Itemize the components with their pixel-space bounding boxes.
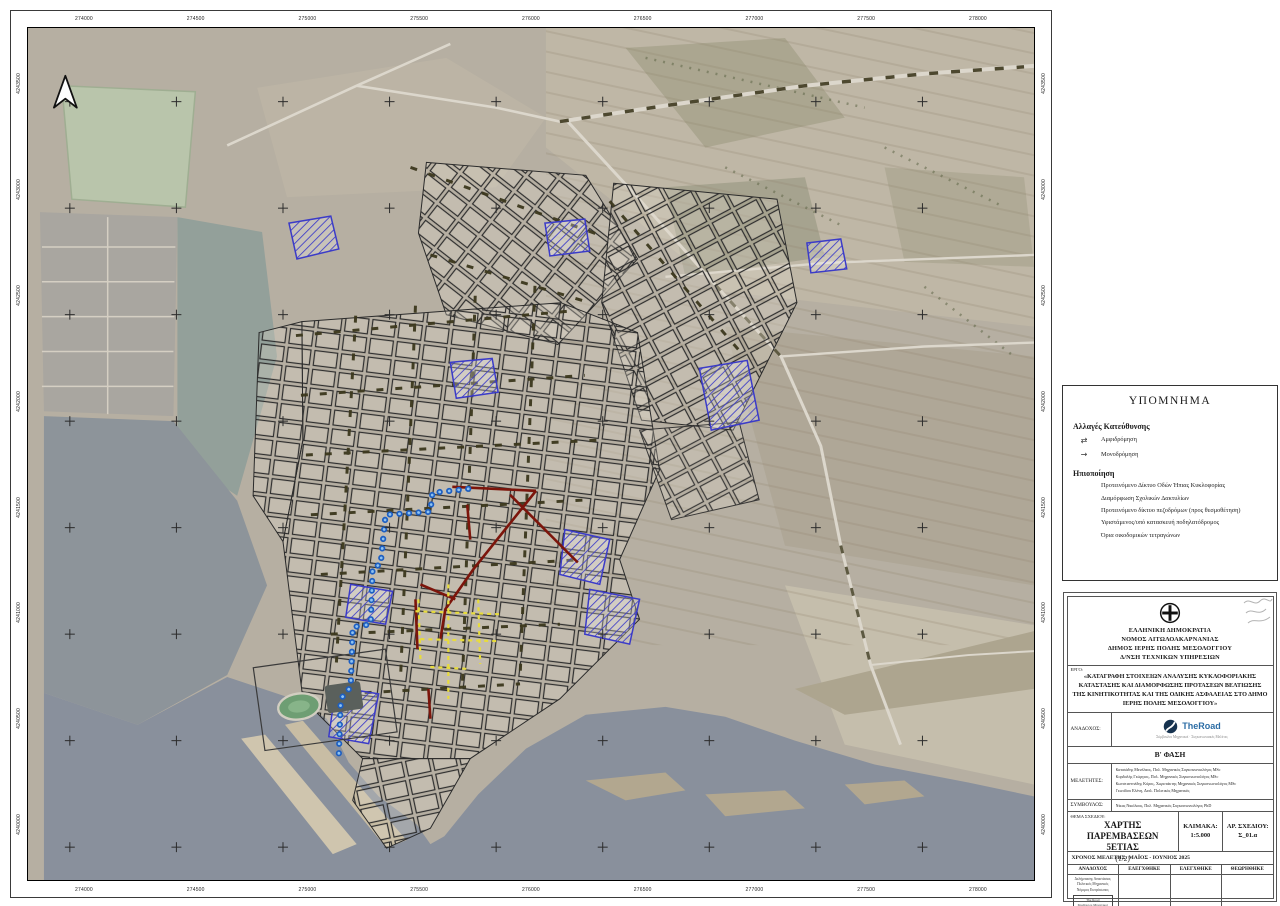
coord-label-y: 4241500 bbox=[1041, 497, 1047, 518]
drawing-number-cell: ΑΡ. ΣΧΕΔΙΟΥ: Σ_01.α bbox=[1223, 812, 1273, 851]
authority-line: Δ/ΝΣΗ ΤΕΧΝΙΚΩΝ ΥΠΗΡΕΣΙΩΝ bbox=[1070, 653, 1271, 662]
coordinate-labels-right: 4243500424300042425004242000424150042410… bbox=[1036, 27, 1051, 881]
coord-label-y: 4242500 bbox=[16, 285, 22, 306]
check-cell-2 bbox=[1171, 875, 1223, 906]
coord-label-y: 4240000 bbox=[16, 814, 22, 835]
theroad-logo-subtitle: Σύμβουλοι Μηχανικοί · Συγκοινωνιακές Μελ… bbox=[1156, 735, 1228, 740]
coord-label-y: 4243500 bbox=[1041, 73, 1047, 94]
legend-arrow-icon: ⇄ bbox=[1079, 437, 1089, 446]
coord-label-x: 275000 bbox=[299, 16, 317, 22]
coord-label-y: 4243000 bbox=[1041, 179, 1047, 200]
drawing-no-label: ΑΡ. ΣΧΕΔΙΟΥ: bbox=[1225, 822, 1271, 832]
coord-label-x: 274000 bbox=[75, 16, 93, 22]
designer-line: Κατσιάδης Μενέλαος, Πολ. Μηχανικός Συγκο… bbox=[1116, 766, 1269, 773]
coord-label-y: 4241000 bbox=[16, 602, 22, 623]
coord-label-y: 4242000 bbox=[16, 391, 22, 412]
legend-title: ΥΠΟΜΝΗΜΑ bbox=[1073, 395, 1267, 407]
check-cell-1 bbox=[1119, 875, 1171, 906]
designer-signatures-icon bbox=[1240, 595, 1274, 629]
coord-label-x: 276000 bbox=[522, 887, 540, 893]
legend-item: Διαμόρφωση Σχολικών Δακτυλίων bbox=[1079, 496, 1267, 503]
coord-label-x: 275500 bbox=[410, 16, 428, 22]
legend-item: Όρια οικοδομικών τετραγώνων bbox=[1079, 533, 1267, 540]
coord-label-y: 4243000 bbox=[16, 179, 22, 200]
coord-label-y: 4240500 bbox=[16, 708, 22, 729]
coord-label-x: 274500 bbox=[187, 16, 205, 22]
coord-label-x: 275500 bbox=[410, 887, 428, 893]
coord-label-x: 278000 bbox=[969, 16, 987, 22]
stamp-line: Σύμβουλοι Μηχανικοί bbox=[1076, 903, 1111, 906]
approve-cell bbox=[1222, 875, 1273, 906]
coord-label-x: 277000 bbox=[746, 887, 764, 893]
designer-line: Κωνσταντινίδης Κύρος, Χωροτάκτης Μηχανικ… bbox=[1116, 780, 1269, 787]
scale-value: 1:5.000 bbox=[1181, 831, 1220, 841]
designers-list: Κατσιάδης Μενέλαος, Πολ. Μηχανικός Συγκο… bbox=[1112, 764, 1273, 799]
coord-label-x: 277000 bbox=[746, 16, 764, 22]
coord-label-x: 274000 bbox=[75, 887, 93, 893]
coord-label-y: 4240500 bbox=[1041, 708, 1047, 729]
subject-cell: ΘΕΜΑ ΣΧΕΔΙΟΥ: ΧΑΡΤΗΣ ΠΑΡΕΜΒΑΣΕΩΝ 5ΕΤΙΑΣ … bbox=[1068, 812, 1179, 851]
title-block: ΕΛΛΗΝΙΚΗ ΔΗΜΟΚΡΑΤΙΑΝΟΜΟΣ ΑΙΤΩΛΟΑΚΑΡΝΑΝΙΑ… bbox=[1063, 592, 1277, 902]
greek-emblem-icon bbox=[1159, 602, 1181, 624]
coord-label-y: 4240000 bbox=[1041, 814, 1047, 835]
legend-item-label: Προτεινόμενο δίκτυο πεζοδρόμων (προς θεσ… bbox=[1101, 508, 1241, 515]
stamp-box: The RoadΣύμβουλοι ΜηχανικοίΣυγκοινωνιακέ… bbox=[1073, 895, 1114, 906]
coord-label-x: 276000 bbox=[522, 16, 540, 22]
legend-section-heading: Αλλαγές Κατεύθυνσης bbox=[1073, 422, 1267, 431]
legend-sections: Αλλαγές Κατεύθυνσης ⇄ Αμφιδρόμηση → bbox=[1073, 422, 1267, 540]
legend-item-label: Διαμόρφωση Σχολικών Δακτυλίων bbox=[1101, 496, 1189, 503]
map-canvas bbox=[27, 27, 1035, 881]
coord-label-y: 4241500 bbox=[16, 497, 22, 518]
subject-title: ΧΑΡΤΗΣ ΠΑΡΕΜΒΑΣΕΩΝ 5ΕΤΙΑΣ bbox=[1071, 820, 1175, 854]
legend-section: Ηπιοποίηση Προτεινόμενο Δίκτυο Οδών Ήπια… bbox=[1073, 469, 1267, 540]
contractor-signature-cell: Δελήμπασης ΑναστάσιοςΠολιτικός Μηχανικός… bbox=[1068, 875, 1120, 906]
legend-arrow-icon: → bbox=[1079, 451, 1089, 460]
legend-item-label: Όρια οικοδομικών τετραγώνων bbox=[1101, 533, 1180, 540]
approval-column-header: ΕΛΕΓΧΘΗΚΕ bbox=[1119, 865, 1171, 875]
subject-label: ΘΕΜΑ ΣΧΕΔΙΟΥ: bbox=[1071, 814, 1175, 819]
map-document-page: 2740002745002750002755002760002765002770… bbox=[0, 0, 1280, 906]
contractor-label: ΑΝΑΔΟΧΟΣ: bbox=[1068, 713, 1112, 746]
legend-item: → Μονοδρόμηση bbox=[1079, 451, 1267, 460]
designer-line: Κορδαλής Γεώργιος, Πολ. Μηχανικός Συγκοι… bbox=[1116, 773, 1269, 780]
legend-panel: ΥΠΟΜΝΗΜΑ Αλλαγές Κατεύθυνσης ⇄ Αμφιδρόμη… bbox=[1062, 385, 1278, 581]
coord-label-y: 4242000 bbox=[1041, 391, 1047, 412]
map-graphic bbox=[28, 28, 1034, 880]
coord-label-y: 4243500 bbox=[16, 73, 22, 94]
authority-line: ΝΟΜΟΣ ΑΙΤΩΛΟΑΚΑΡΝΑΝΙΑΣ bbox=[1070, 635, 1271, 644]
legend-section: Αλλαγές Κατεύθυνσης ⇄ Αμφιδρόμηση → bbox=[1073, 422, 1267, 460]
drawing-no-value: Σ_01.α bbox=[1225, 831, 1271, 841]
legend-item: Προτεινόμενο δίκτυο πεζοδρόμων (προς θεσ… bbox=[1079, 508, 1267, 515]
map-sheet: 2740002745002750002755002760002765002770… bbox=[10, 10, 1052, 898]
theroad-logo-icon bbox=[1163, 719, 1178, 734]
coord-label-x: 275000 bbox=[299, 887, 317, 893]
coordinate-labels-left: 4243500424300042425004242000424150042410… bbox=[11, 27, 26, 881]
legend-item-label: Μονοδρόμηση bbox=[1101, 452, 1138, 459]
project-title: «ΚΑΤΑΓΡΑΦΗ ΣΤΟΙΧΕΙΩΝ ΑΝΑΛΥΣΗΣ ΚΥΚΛΟΦΟΡΙΑ… bbox=[1068, 672, 1273, 712]
theroad-logo-text: TheRoad bbox=[1182, 721, 1221, 731]
coord-label-x: 277500 bbox=[857, 16, 875, 22]
coord-label-y: 4241000 bbox=[1041, 602, 1047, 623]
study-period: ΧΡΟΝΟΣ ΜΕΛΕΤΗΣ: ΜΑΪΟΣ - ΙΟΥΝΙΟΣ 2025 bbox=[1068, 852, 1273, 865]
approval-column-header: ΘΕΩΡΗΘΗΚΕ bbox=[1222, 865, 1273, 875]
consultant-label: ΣΥΜΒΟΥΛΟΣ: bbox=[1068, 800, 1112, 811]
scale-label: ΚΛΙΜΑΚΑ: bbox=[1181, 822, 1220, 832]
consultant-line: Νίκας Νικόλαος, Πολ. Μηχανικός Συγκοινων… bbox=[1116, 802, 1269, 809]
legend-item: ⇄ Αμφιδρόμηση bbox=[1079, 437, 1267, 446]
coord-label-y: 4242500 bbox=[1041, 285, 1047, 306]
signer-line: Νόμιμος Εκπρόσωπος bbox=[1070, 888, 1117, 893]
legend-section-heading: Ηπιοποίηση bbox=[1073, 469, 1267, 478]
coordinate-labels-bottom: 2740002745002750002755002760002765002770… bbox=[27, 882, 1035, 897]
approval-column-header: ΑΝΑΔΟΧΟΣ bbox=[1068, 865, 1120, 875]
coord-label-x: 274500 bbox=[187, 887, 205, 893]
coordinate-labels-top: 2740002745002750002755002760002765002770… bbox=[27, 11, 1035, 26]
legend-item-label: Αμφιδρόμηση bbox=[1101, 437, 1137, 444]
coord-label-x: 276500 bbox=[634, 887, 652, 893]
contractor-logo-cell: TheRoad Σύμβουλοι Μηχανικοί · Συγκοινωνι… bbox=[1112, 713, 1273, 746]
approval-column-header: ΕΛΕΓΧΘΗΚΕ bbox=[1171, 865, 1223, 875]
coord-label-x: 276500 bbox=[634, 16, 652, 22]
phase-label: Β' ΦΑΣΗ bbox=[1068, 747, 1273, 764]
designers-label: ΜΕΛΕΤΗΤΕΣ: bbox=[1068, 764, 1112, 799]
approval-table: ΑΝΑΔΟΧΟΣΕΛΕΓΧΘΗΚΕΕΛΕΓΧΘΗΚΕΘΕΩΡΗΘΗΚΕ Δελή… bbox=[1068, 865, 1273, 906]
legend-item-label: Υφιστάμενος/υπό κατασκευή ποδηλατόδρομος bbox=[1101, 520, 1219, 527]
legend-item: Προτεινόμενο Δίκτυο Οδών Ήπιας Κυκλοφορί… bbox=[1079, 483, 1267, 490]
designer-line: Γεωτίδου Ελένη, Διπλ. Πολιτικός Μηχανικό… bbox=[1116, 787, 1269, 794]
coord-label-x: 277500 bbox=[857, 887, 875, 893]
legend-item-label: Προτεινόμενο Δίκτυο Οδών Ήπιας Κυκλοφορί… bbox=[1101, 483, 1225, 490]
legend-item: Υφιστάμενος/υπό κατασκευή ποδηλατόδρομος bbox=[1079, 520, 1267, 527]
authority-line: ΔΗΜΟΣ ΙΕΡΗΣ ΠΟΛΗΣ ΜΕΣΟΛΟΓΓΙΟΥ bbox=[1070, 644, 1271, 653]
scale-cell: ΚΛΙΜΑΚΑ: 1:5.000 bbox=[1179, 812, 1223, 851]
coord-label-x: 278000 bbox=[969, 887, 987, 893]
